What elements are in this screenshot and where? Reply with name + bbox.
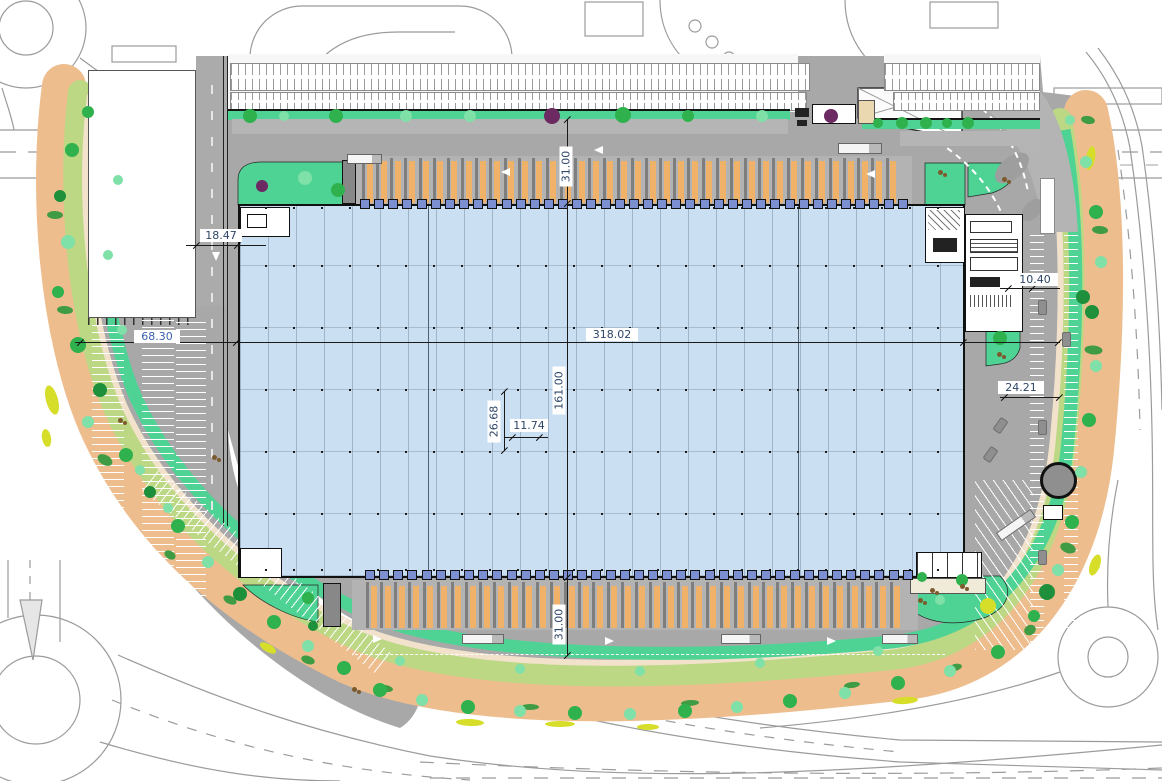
building-column-dot <box>517 569 519 571</box>
dock-trailer-icon <box>823 586 829 628</box>
building-column-dot <box>937 265 939 267</box>
building-column-dot <box>629 513 631 515</box>
building-column-dot <box>825 389 827 391</box>
tree-icon <box>514 705 526 717</box>
tree-icon <box>298 171 312 185</box>
loading-dock-icon <box>762 582 765 628</box>
annex-room <box>970 221 1012 233</box>
building-column-dot <box>937 569 939 571</box>
parking-canopy-row <box>230 63 810 91</box>
building-column-dot <box>545 389 547 391</box>
dock-door-icon <box>733 570 743 580</box>
building-column-dot <box>321 451 323 453</box>
loading-dock-icon <box>734 582 737 628</box>
building-column-dot <box>461 569 463 571</box>
dock-door-icon <box>846 570 856 580</box>
building-column-dot <box>825 451 827 453</box>
loading-dock-icon <box>574 158 577 204</box>
dock-trailer-icon <box>480 161 486 203</box>
room-detail <box>247 214 267 228</box>
building-column-dot <box>405 265 407 267</box>
parking-stalls-east-top <box>1040 178 1055 234</box>
dock-trailer-icon <box>876 161 882 203</box>
building-column-dot <box>937 513 939 515</box>
building-column-dot <box>825 327 827 329</box>
bush-yellow-icon <box>980 598 996 614</box>
building-column-dot <box>489 327 491 329</box>
tree-icon <box>279 111 289 121</box>
building-column-dot <box>685 265 687 267</box>
building-column-dot <box>377 389 379 391</box>
building-column-dot <box>433 569 435 571</box>
dock-door-icon <box>629 199 639 209</box>
loading-dock-icon <box>489 158 492 204</box>
dock-door-icon <box>662 570 672 580</box>
loading-dock-icon <box>805 582 808 628</box>
building-column-dot <box>685 451 687 453</box>
tree-icon <box>682 110 694 122</box>
building-column-dot <box>545 513 547 515</box>
loading-dock-icon <box>380 582 383 628</box>
dock-door-icon <box>445 199 455 209</box>
road-arrow-icon <box>862 170 875 178</box>
dock-trailer-icon <box>395 161 401 203</box>
dock-door-icon <box>374 199 384 209</box>
tree-icon <box>935 595 945 605</box>
building-column-dot <box>713 451 715 453</box>
tree-icon <box>1075 466 1087 478</box>
building-column-dot <box>293 569 295 571</box>
truck-icon <box>462 634 504 644</box>
loading-dock-icon <box>886 158 889 204</box>
loading-dock-icon <box>776 582 779 628</box>
building-column-dot <box>461 389 463 391</box>
dock-door-icon <box>685 199 695 209</box>
tree-icon <box>942 118 952 128</box>
loading-dock-icon <box>390 158 393 204</box>
building-column-dot <box>489 389 491 391</box>
building-column-dot <box>741 265 743 267</box>
tree-icon <box>1052 564 1064 576</box>
truck-icon <box>882 634 918 644</box>
loading-dock-icon <box>546 158 549 204</box>
building-column-dot <box>769 513 771 515</box>
loading-dock-icon <box>518 158 521 204</box>
tree-icon <box>783 694 797 708</box>
dock-trailer-icon <box>381 161 387 203</box>
dock-door-icon <box>671 199 681 209</box>
tree-icon <box>678 704 692 718</box>
dock-door-icon <box>436 570 446 580</box>
building-compartment-wall <box>428 206 429 576</box>
building-column-dot <box>433 265 435 267</box>
tree-icon <box>373 683 387 697</box>
dimension-label-access-road: 18.47 <box>200 229 242 242</box>
shrub-icon <box>1007 180 1011 184</box>
tree-icon <box>991 645 1005 659</box>
building-column-dot <box>685 513 687 515</box>
tree-icon <box>1039 584 1055 600</box>
pump-station <box>1043 505 1063 520</box>
building-column-dot <box>657 327 659 329</box>
dock-door-icon <box>459 199 469 209</box>
loading-dock-icon <box>493 582 496 628</box>
dock-door-icon <box>634 570 644 580</box>
building-column-dot <box>769 389 771 391</box>
loading-dock-icon <box>673 158 676 204</box>
tree-icon <box>308 621 318 631</box>
tree-icon <box>243 109 257 123</box>
road-arrow-icon <box>497 168 510 176</box>
loading-dock-icon <box>631 158 634 204</box>
tree-icon <box>1080 156 1092 168</box>
dock-door-icon <box>492 570 502 580</box>
loading-dock-icon <box>621 582 624 628</box>
shrub-icon <box>943 173 947 177</box>
road-arrow-icon <box>827 637 840 645</box>
building-column-dot <box>825 513 827 515</box>
parking-stalls-diagonal-east <box>975 480 1033 650</box>
building-column-dot <box>685 327 687 329</box>
building-column-dot <box>909 207 911 209</box>
dock-trailer-icon <box>749 161 755 203</box>
building-column-dot <box>545 569 547 571</box>
building-column-dot <box>797 513 799 515</box>
loading-dock-icon <box>659 158 662 204</box>
dock-trailer-icon <box>862 161 868 203</box>
loading-dock-icon <box>730 158 733 204</box>
building-column-dot <box>405 389 407 391</box>
building-column-dot <box>321 207 323 209</box>
building-column-dot <box>601 513 603 515</box>
tree-icon <box>331 183 345 197</box>
fence-line <box>227 56 228 526</box>
dock-door-icon <box>615 199 625 209</box>
dock-trailer-icon <box>466 161 472 203</box>
building-column-dot <box>321 389 323 391</box>
loading-dock-icon <box>744 158 747 204</box>
loading-dock-icon <box>687 158 690 204</box>
building-column-dot <box>349 513 351 515</box>
loading-dock-icon <box>758 158 761 204</box>
stair-hatch <box>928 210 960 230</box>
loading-dock-icon <box>504 158 507 204</box>
building-column-dot <box>293 513 295 515</box>
dock-trailer-icon <box>720 161 726 203</box>
building-column-dot <box>293 327 295 329</box>
tree-icon <box>202 556 214 568</box>
building-column-dot <box>657 389 659 391</box>
dock-trailer-icon <box>607 161 613 203</box>
tree-icon <box>163 503 173 513</box>
building-column-dot <box>713 513 715 515</box>
dock-trailer-icon <box>805 161 811 203</box>
dock-door-icon <box>747 570 757 580</box>
room-detail <box>933 238 957 252</box>
loading-dock-icon <box>592 582 595 628</box>
dock-trailer-icon <box>724 586 730 628</box>
building-column-dot <box>489 265 491 267</box>
tree-icon <box>515 664 525 674</box>
tree-icon <box>395 656 405 666</box>
tree-icon <box>731 701 743 713</box>
dock-door-icon <box>365 570 375 580</box>
loading-dock-icon <box>522 582 525 628</box>
dock-door-icon <box>860 570 870 580</box>
dock-trailer-icon <box>753 586 759 628</box>
building-column-dot <box>713 265 715 267</box>
dock-door-icon <box>591 570 601 580</box>
dock-door-icon <box>884 199 894 209</box>
parking-canopy-row <box>893 92 1040 111</box>
tree-icon <box>400 110 412 122</box>
tree-icon <box>61 235 75 249</box>
dock-door-icon <box>422 570 432 580</box>
building-column-dot <box>517 265 519 267</box>
tree-icon <box>337 661 351 675</box>
building-column-dot <box>321 265 323 267</box>
tree-icon <box>119 448 133 462</box>
building-column-dot <box>769 451 771 453</box>
dock-door-icon <box>478 570 488 580</box>
dock-door-icon <box>756 199 766 209</box>
tree-icon <box>1065 115 1075 125</box>
tree-icon <box>329 109 343 123</box>
dock-door-icon <box>360 199 370 209</box>
building-column-dot <box>853 327 855 329</box>
building-column-dot <box>321 327 323 329</box>
dock-door-icon <box>804 570 814 580</box>
loading-dock-icon <box>607 582 610 628</box>
dock-trailer-icon <box>512 586 518 628</box>
shrub-icon <box>923 601 927 605</box>
tree-icon <box>1065 515 1079 529</box>
dimension-label-east-yard: 24.21 <box>998 381 1044 394</box>
tree-icon <box>891 676 905 690</box>
building-stair-core <box>925 207 965 263</box>
dock-trailer-icon <box>409 161 415 203</box>
dock-trailer-icon <box>399 586 405 628</box>
parking-stalls-north <box>232 119 788 134</box>
loading-dock-icon <box>645 158 648 204</box>
dock-trailer-icon <box>441 586 447 628</box>
building-column-dot <box>713 327 715 329</box>
dock-trailer-icon <box>437 161 443 203</box>
building-column-dot <box>573 569 575 571</box>
building-column-dot <box>713 389 715 391</box>
loading-dock-icon <box>847 582 850 628</box>
building-column-dot <box>349 265 351 267</box>
dock-trailer-icon <box>706 161 712 203</box>
building-column-dot <box>573 389 575 391</box>
tree-icon <box>962 117 974 129</box>
dock-trailer-icon <box>611 586 617 628</box>
dock-door-icon <box>530 199 540 209</box>
building-column-dot <box>265 569 267 571</box>
dock-trailer-icon <box>890 161 896 203</box>
building-column-dot <box>657 265 659 267</box>
dock-door-icon <box>393 570 403 580</box>
dock-trailer-icon <box>526 586 532 628</box>
building-column-dot <box>881 451 883 453</box>
dock-trailer-icon <box>569 586 575 628</box>
tree-icon <box>920 117 932 129</box>
building-column-dot <box>461 265 463 267</box>
bush-yellow-icon <box>545 721 575 727</box>
loading-dock-icon <box>617 158 620 204</box>
dock-trailer-icon <box>498 586 504 628</box>
dock-door-icon <box>869 199 879 209</box>
building-column-dot <box>909 265 911 267</box>
building-column-dot <box>629 389 631 391</box>
dock-door-icon <box>898 199 908 209</box>
building-column-dot <box>433 389 435 391</box>
dock-trailer-icon <box>451 161 457 203</box>
dock-trailer-icon <box>734 161 740 203</box>
dock-door-icon <box>572 199 582 209</box>
road-arrow-icon <box>373 635 386 643</box>
building-column-dot <box>377 451 379 453</box>
building-column-dot <box>573 265 575 267</box>
building-column-dot <box>349 207 351 209</box>
building-column-dot <box>853 513 855 515</box>
dock-door-icon <box>388 199 398 209</box>
dock-trailer-icon <box>763 161 769 203</box>
tree-icon <box>52 286 64 298</box>
dock-door-icon <box>813 199 823 209</box>
tree-icon <box>113 175 123 185</box>
loading-dock-icon <box>362 158 365 204</box>
loading-dock-icon <box>649 582 652 628</box>
dock-door-icon <box>728 199 738 209</box>
dock-door-icon <box>676 570 686 580</box>
building-column-dot <box>629 265 631 267</box>
dock-trailer-icon <box>635 161 641 203</box>
building-column-dot <box>517 389 519 391</box>
dimension-label-north-yard: 31.00 <box>560 147 573 187</box>
dock-trailer-icon <box>522 161 528 203</box>
dock-trailer-icon <box>597 586 603 628</box>
tree-icon <box>944 665 956 677</box>
tree-icon <box>1082 413 1096 427</box>
dock-trailer-icon <box>837 586 843 628</box>
tree-icon <box>755 658 765 668</box>
building-column-dot <box>937 451 939 453</box>
tree-icon <box>615 107 631 123</box>
dock-trailer-icon <box>484 586 490 628</box>
bush-icon <box>47 211 63 220</box>
loading-dock-icon <box>815 158 818 204</box>
dock-trailer-icon <box>767 586 773 628</box>
dock-trailer-icon <box>423 161 429 203</box>
loading-dock-icon <box>857 158 860 204</box>
tree-icon <box>896 117 908 129</box>
dock-trailer-icon <box>625 586 631 628</box>
building-column-dot <box>741 327 743 329</box>
building-column-dot <box>405 327 407 329</box>
building-column-dot <box>377 265 379 267</box>
loading-dock-icon <box>508 582 511 628</box>
parking-stalls-north <box>900 131 1040 146</box>
loading-dock-icon <box>871 158 874 204</box>
tree-icon <box>302 592 314 604</box>
building-column-dot <box>909 451 911 453</box>
dock-trailer-icon <box>833 161 839 203</box>
building-column-dot <box>349 451 351 453</box>
dock-door-icon <box>889 570 899 580</box>
building-column-dot <box>405 451 407 453</box>
dock-trailer-icon <box>455 586 461 628</box>
loading-dock-icon <box>376 158 379 204</box>
truck-icon <box>838 143 882 154</box>
building-column-dot <box>265 265 267 267</box>
dock-trailer-icon <box>654 586 660 628</box>
dock-door-icon <box>407 570 417 580</box>
dock-ramp <box>323 583 341 627</box>
car-icon <box>1062 332 1071 347</box>
tree-icon <box>873 646 883 656</box>
building-corner-room-sw <box>240 548 282 578</box>
tree-icon <box>54 190 66 202</box>
dock-trailer-icon <box>809 586 815 628</box>
loading-dock-icon <box>419 158 422 204</box>
building-column-dot <box>461 513 463 515</box>
dock-trailer-icon <box>664 161 670 203</box>
tree-icon <box>416 694 428 706</box>
tree-icon <box>873 118 883 128</box>
building-column-dot <box>573 327 575 329</box>
road-arrow-icon <box>212 252 220 265</box>
shrub-icon <box>935 591 939 595</box>
loading-dock-icon <box>702 158 705 204</box>
dock-trailer-icon <box>583 586 589 628</box>
dock-door-icon <box>431 199 441 209</box>
loading-dock-icon <box>748 582 751 628</box>
building-column-dot <box>797 389 799 391</box>
bush-yellow-icon <box>637 724 659 730</box>
building-column-dot <box>601 389 603 391</box>
tree-icon <box>103 250 113 260</box>
loading-dock-icon <box>716 158 719 204</box>
building-column-dot <box>629 451 631 453</box>
dock-door-icon <box>874 570 884 580</box>
loading-dock-icon <box>479 582 482 628</box>
car-icon <box>1038 550 1047 565</box>
dock-trailer-icon <box>795 586 801 628</box>
shrub-icon <box>1002 355 1006 359</box>
dock-trailer-icon <box>710 586 716 628</box>
car-icon <box>1038 420 1047 435</box>
dock-trailer-icon <box>852 586 858 628</box>
building-column-dot <box>853 451 855 453</box>
loading-dock-icon <box>603 158 606 204</box>
building-column-dot <box>517 327 519 329</box>
building-column-dot <box>377 327 379 329</box>
building-column-dot <box>685 389 687 391</box>
building-column-dot <box>881 327 883 329</box>
gate-barrier <box>797 120 807 126</box>
building-column-dot <box>293 451 295 453</box>
tree-icon <box>117 325 127 335</box>
building-column-dot <box>769 327 771 329</box>
dock-door-icon <box>705 570 715 580</box>
dock-trailer-icon <box>696 586 702 628</box>
loading-dock-icon <box>890 582 893 628</box>
dimension-label-bay-depth: 26.68 <box>488 401 501 443</box>
dimension-label-bay-width: 11.74 <box>510 419 548 432</box>
loading-dock-icon <box>801 158 804 204</box>
loading-dock-icon <box>677 582 680 628</box>
